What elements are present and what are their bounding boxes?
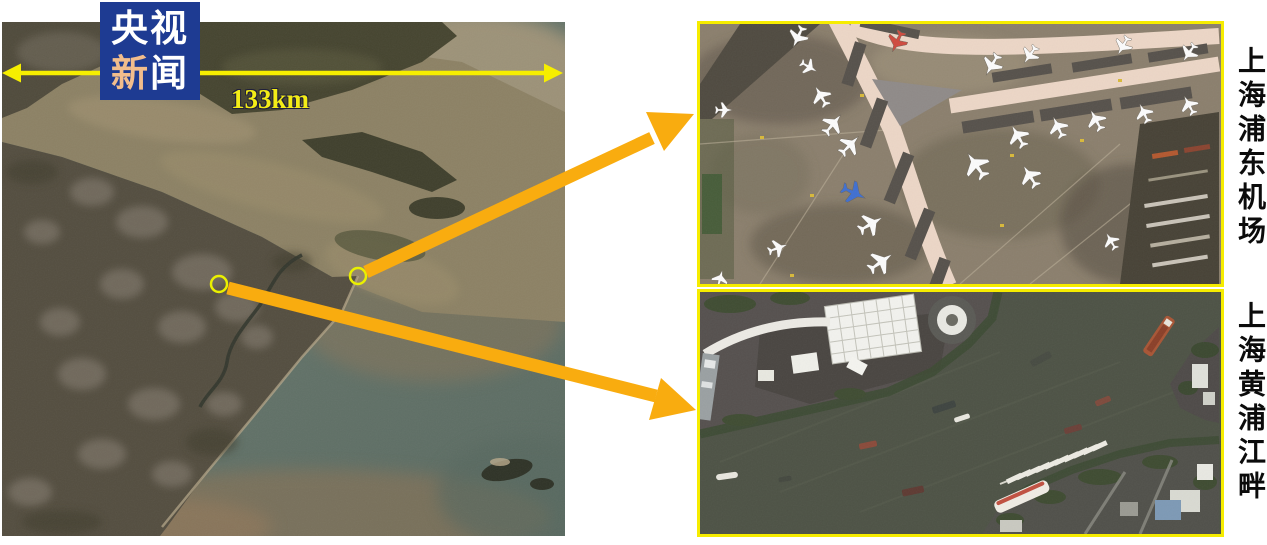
logo-line2-rest: 闻 [150, 53, 189, 94]
inset-image-huangpu-river [697, 289, 1224, 537]
news-graphic: 133km 央视 新闻 [0, 0, 1267, 545]
logo-line2: 新闻 [111, 51, 189, 96]
scale-label: 133km [231, 84, 309, 115]
river-art [700, 292, 1221, 534]
cctv-news-logo: 央视 新闻 [100, 2, 200, 100]
inset-label-huangpu-river: 上海黄浦江畔 [1230, 301, 1267, 505]
airport-art [700, 24, 1221, 284]
inset-label-pudong-airport: 上海浦东机场 [1230, 46, 1267, 250]
logo-line2-highlight: 新 [111, 53, 150, 94]
inset-image-pudong-airport [697, 21, 1224, 287]
logo-line1: 央视 [111, 6, 189, 51]
